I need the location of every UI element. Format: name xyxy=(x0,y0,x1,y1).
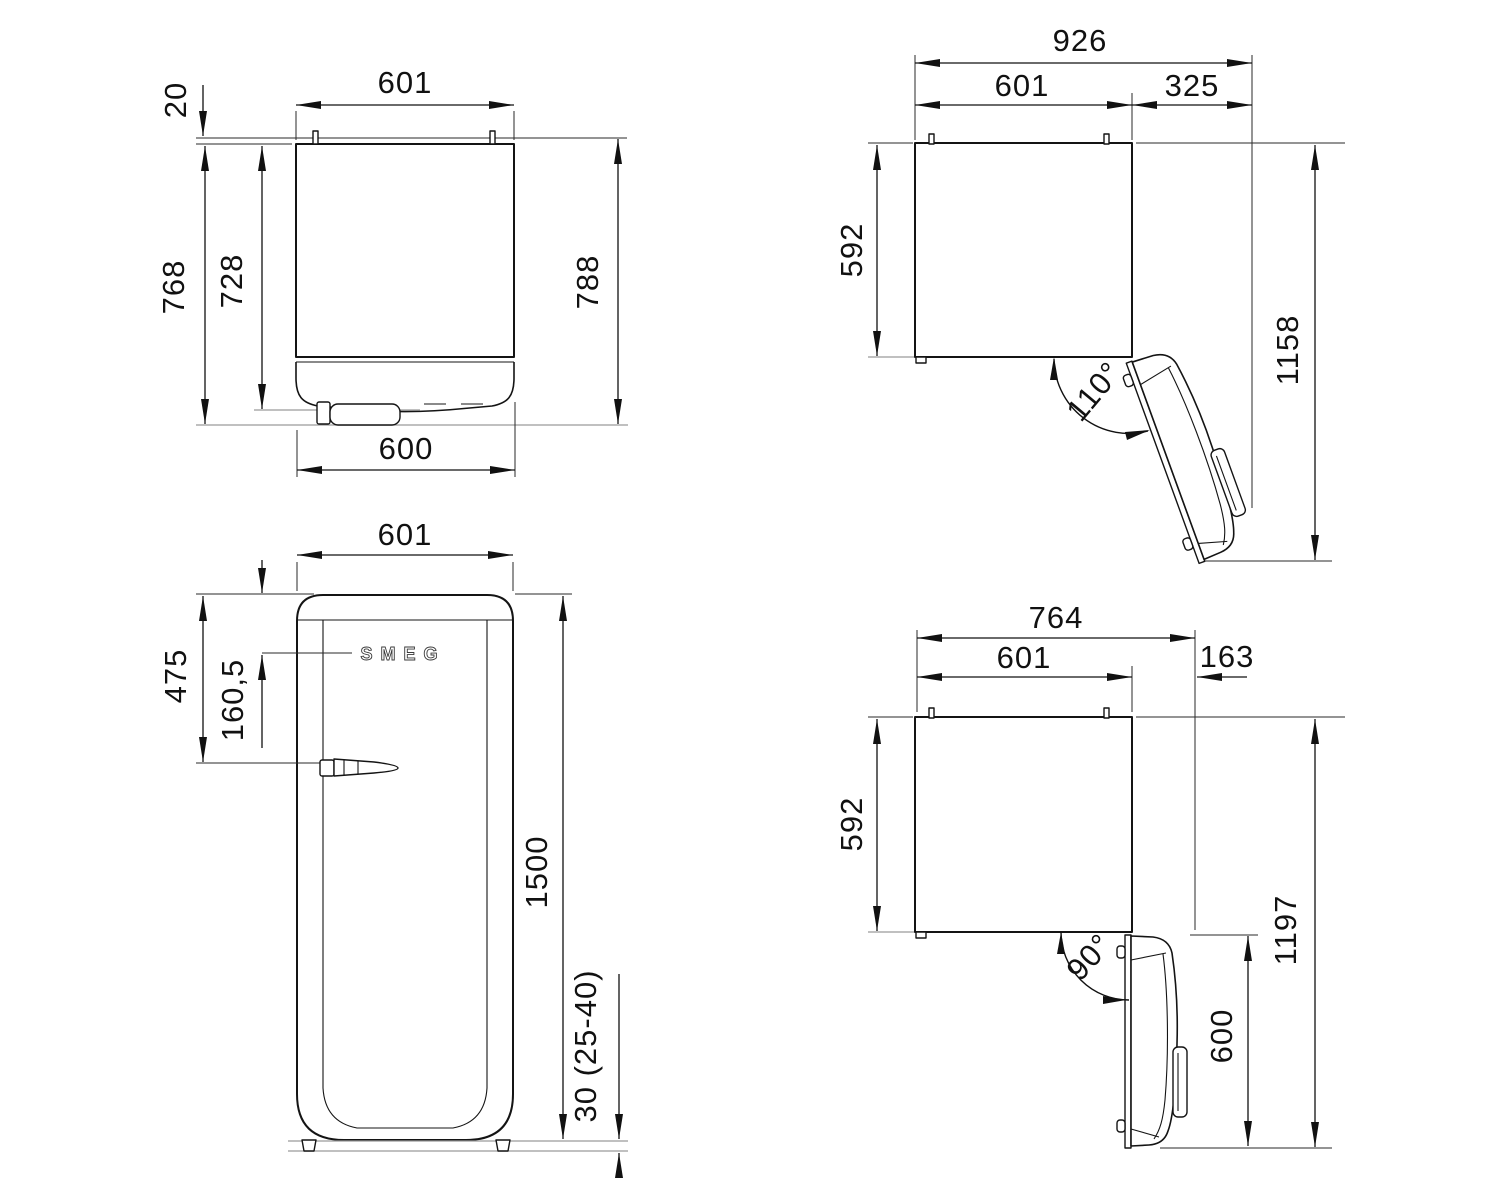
ext-front-width xyxy=(297,562,513,591)
dim-overall-width-110: 926 xyxy=(1053,23,1108,58)
smeg-logo: SMEG xyxy=(360,644,445,664)
handle-mount-top xyxy=(317,402,330,424)
dim-body-width-110: 601 xyxy=(995,68,1050,103)
hinge-pin-left-90 xyxy=(929,708,934,718)
door-open-90-view: 764 601 163 592 1197 600 90° xyxy=(834,600,1345,1148)
hinge-pin-left-110 xyxy=(929,134,934,144)
foot-right xyxy=(496,1140,510,1151)
handle-mount-front xyxy=(320,760,334,776)
dim-door-width: 600 xyxy=(379,431,434,466)
open-door-110 xyxy=(1119,342,1258,566)
dim-body-depth-90: 592 xyxy=(834,797,869,852)
dim-depth-to-handle: 768 xyxy=(156,260,191,315)
arc-arrow-end-90 xyxy=(1103,996,1126,1004)
open-door-90 xyxy=(1117,935,1187,1148)
dim-door-projection-90: 163 xyxy=(1200,639,1255,674)
dim-height: 1500 xyxy=(519,836,554,909)
arc-arrow-end-110 xyxy=(1125,430,1150,440)
dim-body-depth-110: 592 xyxy=(834,223,869,278)
dim-overall-depth-90: 1197 xyxy=(1268,895,1303,966)
handle-bar-top xyxy=(330,404,400,425)
foot-left xyxy=(302,1140,316,1151)
dim-door-projection-110: 325 xyxy=(1165,68,1220,103)
dim-open-angle-110: 110° xyxy=(1059,355,1128,428)
arc-arrow-start-90 xyxy=(1057,932,1065,954)
hinge-pin-right-110 xyxy=(1104,134,1109,144)
door-open-110-view: 926 601 325 592 1158 110° xyxy=(834,23,1345,566)
arc-arrow-start-110 xyxy=(1050,357,1058,380)
dim-hinge-offset: 20 xyxy=(158,82,193,118)
fridge-front-outline xyxy=(297,595,513,1140)
cabinet-outline-90 xyxy=(915,717,1132,932)
dimension-drawing-page: 601 20 768 728 788 600 926 601 325 xyxy=(0,0,1500,1200)
dim-logo-from-top: 160,5 xyxy=(215,659,250,742)
dim-door-depth-90: 600 xyxy=(1204,1009,1239,1064)
dim-open-angle-90: 90° xyxy=(1060,927,1119,987)
dim-top-width: 601 xyxy=(378,65,433,100)
ext-width xyxy=(296,111,514,140)
dim-front-width: 601 xyxy=(378,517,433,552)
dim-overall-depth-110: 1158 xyxy=(1270,315,1305,386)
cabinet-top-outline xyxy=(296,144,514,357)
dim-feet-height: 30 (25-40) xyxy=(568,969,603,1122)
dim-depth-overall: 788 xyxy=(570,255,605,310)
front-foot-110 xyxy=(916,357,926,363)
front-foot-90 xyxy=(916,932,926,938)
dim-body-width-90: 601 xyxy=(997,640,1052,675)
dim-handle-from-top: 475 xyxy=(158,649,193,704)
front-view: SMEG 601 475 160,5 1500 30 (25-40) xyxy=(158,517,628,1170)
hinge-pin-right xyxy=(490,131,495,144)
dim-overall-width-90: 764 xyxy=(1029,600,1084,635)
refrigerator-dimension-drawing: 601 20 768 728 788 600 926 601 325 xyxy=(0,0,1500,1200)
top-view: 601 20 768 728 788 600 xyxy=(156,65,628,477)
hinge-pin-right-90 xyxy=(1104,708,1109,718)
dim-depth-body: 728 xyxy=(214,254,249,309)
hinge-pin-left xyxy=(313,131,318,144)
cabinet-outline-110 xyxy=(915,143,1132,357)
